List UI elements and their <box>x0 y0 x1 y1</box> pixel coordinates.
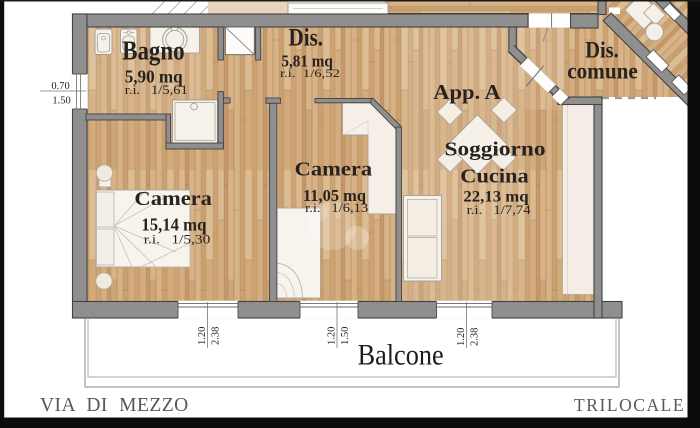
svg-text:r.i. 1/7,74: r.i. 1/7,74 <box>467 203 532 217</box>
svg-text:1.20: 1.20 <box>456 328 467 346</box>
svg-text:Soggiorno: Soggiorno <box>445 139 546 161</box>
svg-text:Camera: Camera <box>134 188 212 210</box>
svg-text:Balcone: Balcone <box>358 339 444 372</box>
svg-text:r.i. 1/6,52: r.i. 1/6,52 <box>280 66 340 80</box>
svg-text:1.50: 1.50 <box>52 96 70 107</box>
svg-text:1.20: 1.20 <box>197 327 208 345</box>
svg-text:VIA DI MEZZO: VIA DI MEZZO <box>40 395 190 416</box>
svg-text:Bagno: Bagno <box>122 36 185 66</box>
svg-text:Camera: Camera <box>295 159 373 181</box>
svg-text:2.38: 2.38 <box>211 327 222 345</box>
svg-text:comune: comune <box>567 59 638 85</box>
svg-text:2.38: 2.38 <box>470 328 481 346</box>
svg-text:App. A: App. A <box>433 80 501 104</box>
svg-text:TRILOCALE: TRILOCALE <box>574 395 686 415</box>
svg-text:Cucina: Cucina <box>460 166 528 188</box>
svg-text:1.50: 1.50 <box>340 327 351 345</box>
svg-text:0.70: 0.70 <box>51 81 69 92</box>
svg-text:r.i. 1/5,30: r.i. 1/5,30 <box>144 233 211 247</box>
svg-text:Dis.: Dis. <box>289 25 324 52</box>
svg-text:r.i. 1/5,61: r.i. 1/5,61 <box>125 82 188 97</box>
svg-text:1.20: 1.20 <box>327 327 338 345</box>
svg-text:r.i. 1/6,13: r.i. 1/6,13 <box>305 201 368 215</box>
svg-text:15,14 mq: 15,14 mq <box>141 215 206 235</box>
